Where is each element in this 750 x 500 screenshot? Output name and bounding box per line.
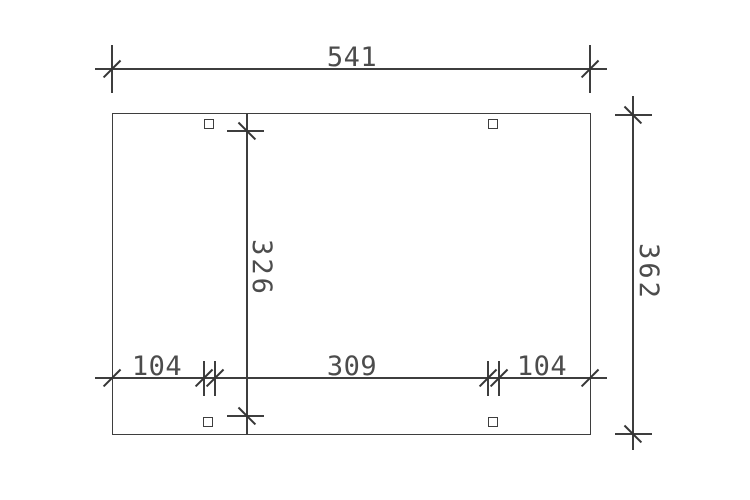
post-top-left xyxy=(204,119,214,129)
carport-outline-rect xyxy=(112,113,591,435)
dimension-label-overall-width: 541 xyxy=(312,45,392,71)
post-bottom-left xyxy=(203,417,213,427)
dimension-label-post-spacing: 309 xyxy=(312,354,392,380)
dimension-label-left-offset: 104 xyxy=(117,354,197,380)
dimension-label-inner-depth: 326 xyxy=(248,228,274,308)
technical-drawing-canvas: 541 362 326 104 309 104 xyxy=(0,0,750,500)
dimension-label-right-offset: 104 xyxy=(502,354,582,380)
post-top-right xyxy=(488,119,498,129)
dimension-label-overall-depth: 362 xyxy=(635,232,661,312)
post-bottom-right xyxy=(488,417,498,427)
